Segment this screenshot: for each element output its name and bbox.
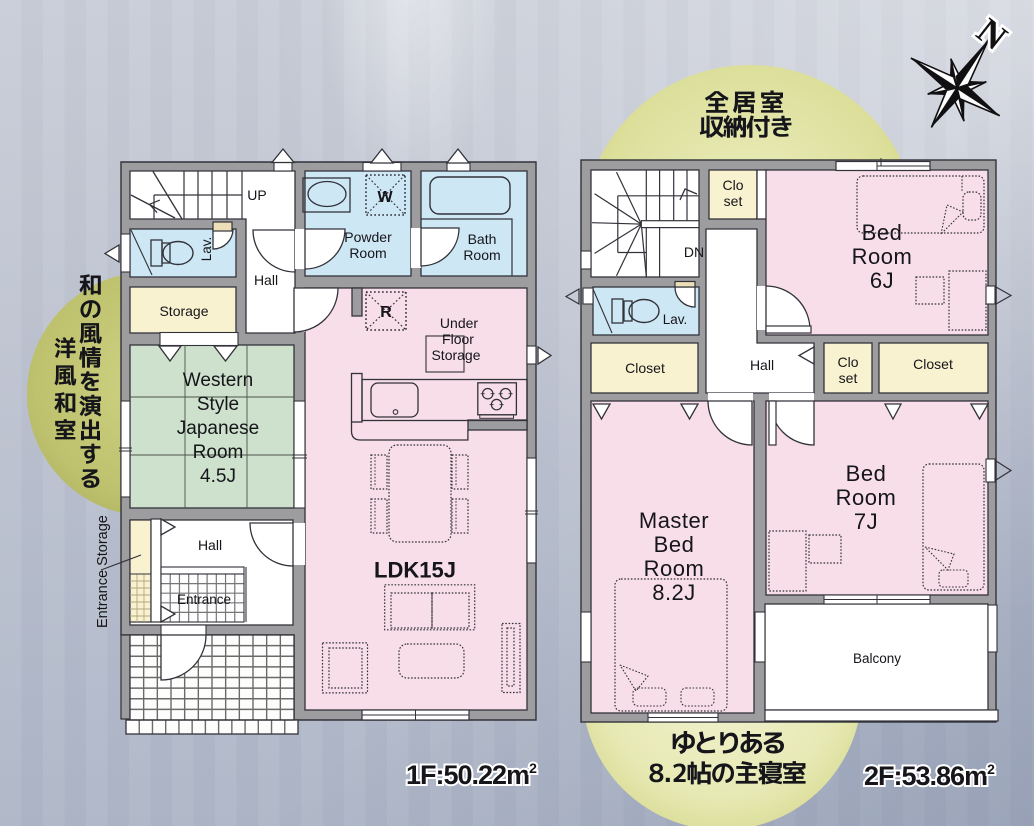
svg-text:Under: Under bbox=[440, 315, 478, 331]
svg-text:Room: Room bbox=[644, 556, 705, 581]
svg-text:Hall: Hall bbox=[750, 357, 774, 373]
svg-text:Clo: Clo bbox=[837, 354, 858, 370]
svg-text:Storage: Storage bbox=[431, 347, 480, 363]
svg-text:Room: Room bbox=[349, 245, 386, 261]
svg-text:1F:50.22m2: 1F:50.22m2 bbox=[406, 760, 537, 790]
svg-text:Closet: Closet bbox=[913, 356, 953, 372]
svg-text:Balcony: Balcony bbox=[853, 651, 901, 666]
svg-text:Hall: Hall bbox=[198, 537, 222, 553]
svg-text:Lav.: Lav. bbox=[199, 237, 214, 262]
svg-text:Western: Western bbox=[183, 370, 253, 391]
svg-text:Powder: Powder bbox=[344, 229, 392, 245]
svg-text:Bed: Bed bbox=[846, 461, 887, 486]
svg-text:R: R bbox=[380, 304, 392, 321]
svg-text:6J: 6J bbox=[870, 268, 894, 293]
svg-text:Entrance Storage: Entrance Storage bbox=[95, 515, 111, 628]
svg-text:8.2J: 8.2J bbox=[652, 580, 696, 605]
svg-text:Lav.: Lav. bbox=[663, 312, 688, 327]
svg-text:Room: Room bbox=[852, 244, 913, 269]
svg-text:Closet: Closet bbox=[625, 360, 665, 376]
svg-text:UP: UP bbox=[247, 187, 266, 203]
svg-text:Clo: Clo bbox=[722, 177, 743, 193]
svg-text:Room: Room bbox=[463, 247, 500, 263]
svg-text:Bed: Bed bbox=[654, 532, 695, 557]
svg-text:Room: Room bbox=[193, 442, 244, 463]
svg-text:Japanese: Japanese bbox=[177, 418, 259, 439]
svg-text:W: W bbox=[377, 189, 393, 206]
svg-text:2F:53.86m2: 2F:53.86m2 bbox=[864, 761, 995, 791]
svg-text:Master: Master bbox=[639, 508, 709, 533]
svg-text:set: set bbox=[724, 193, 743, 209]
svg-text:Entrance: Entrance bbox=[177, 592, 231, 607]
svg-text:4.5J: 4.5J bbox=[200, 466, 236, 487]
svg-text:Floor: Floor bbox=[442, 331, 474, 347]
svg-text:set: set bbox=[839, 370, 858, 386]
svg-text:7J: 7J bbox=[854, 509, 878, 534]
svg-text:DN: DN bbox=[684, 244, 704, 260]
svg-text:Room: Room bbox=[836, 485, 897, 510]
svg-text:LDK15J: LDK15J bbox=[374, 558, 456, 583]
svg-text:Storage: Storage bbox=[159, 303, 208, 319]
svg-text:Hall: Hall bbox=[254, 272, 278, 288]
svg-text:Style: Style bbox=[197, 394, 239, 415]
svg-text:Bath: Bath bbox=[468, 231, 497, 247]
